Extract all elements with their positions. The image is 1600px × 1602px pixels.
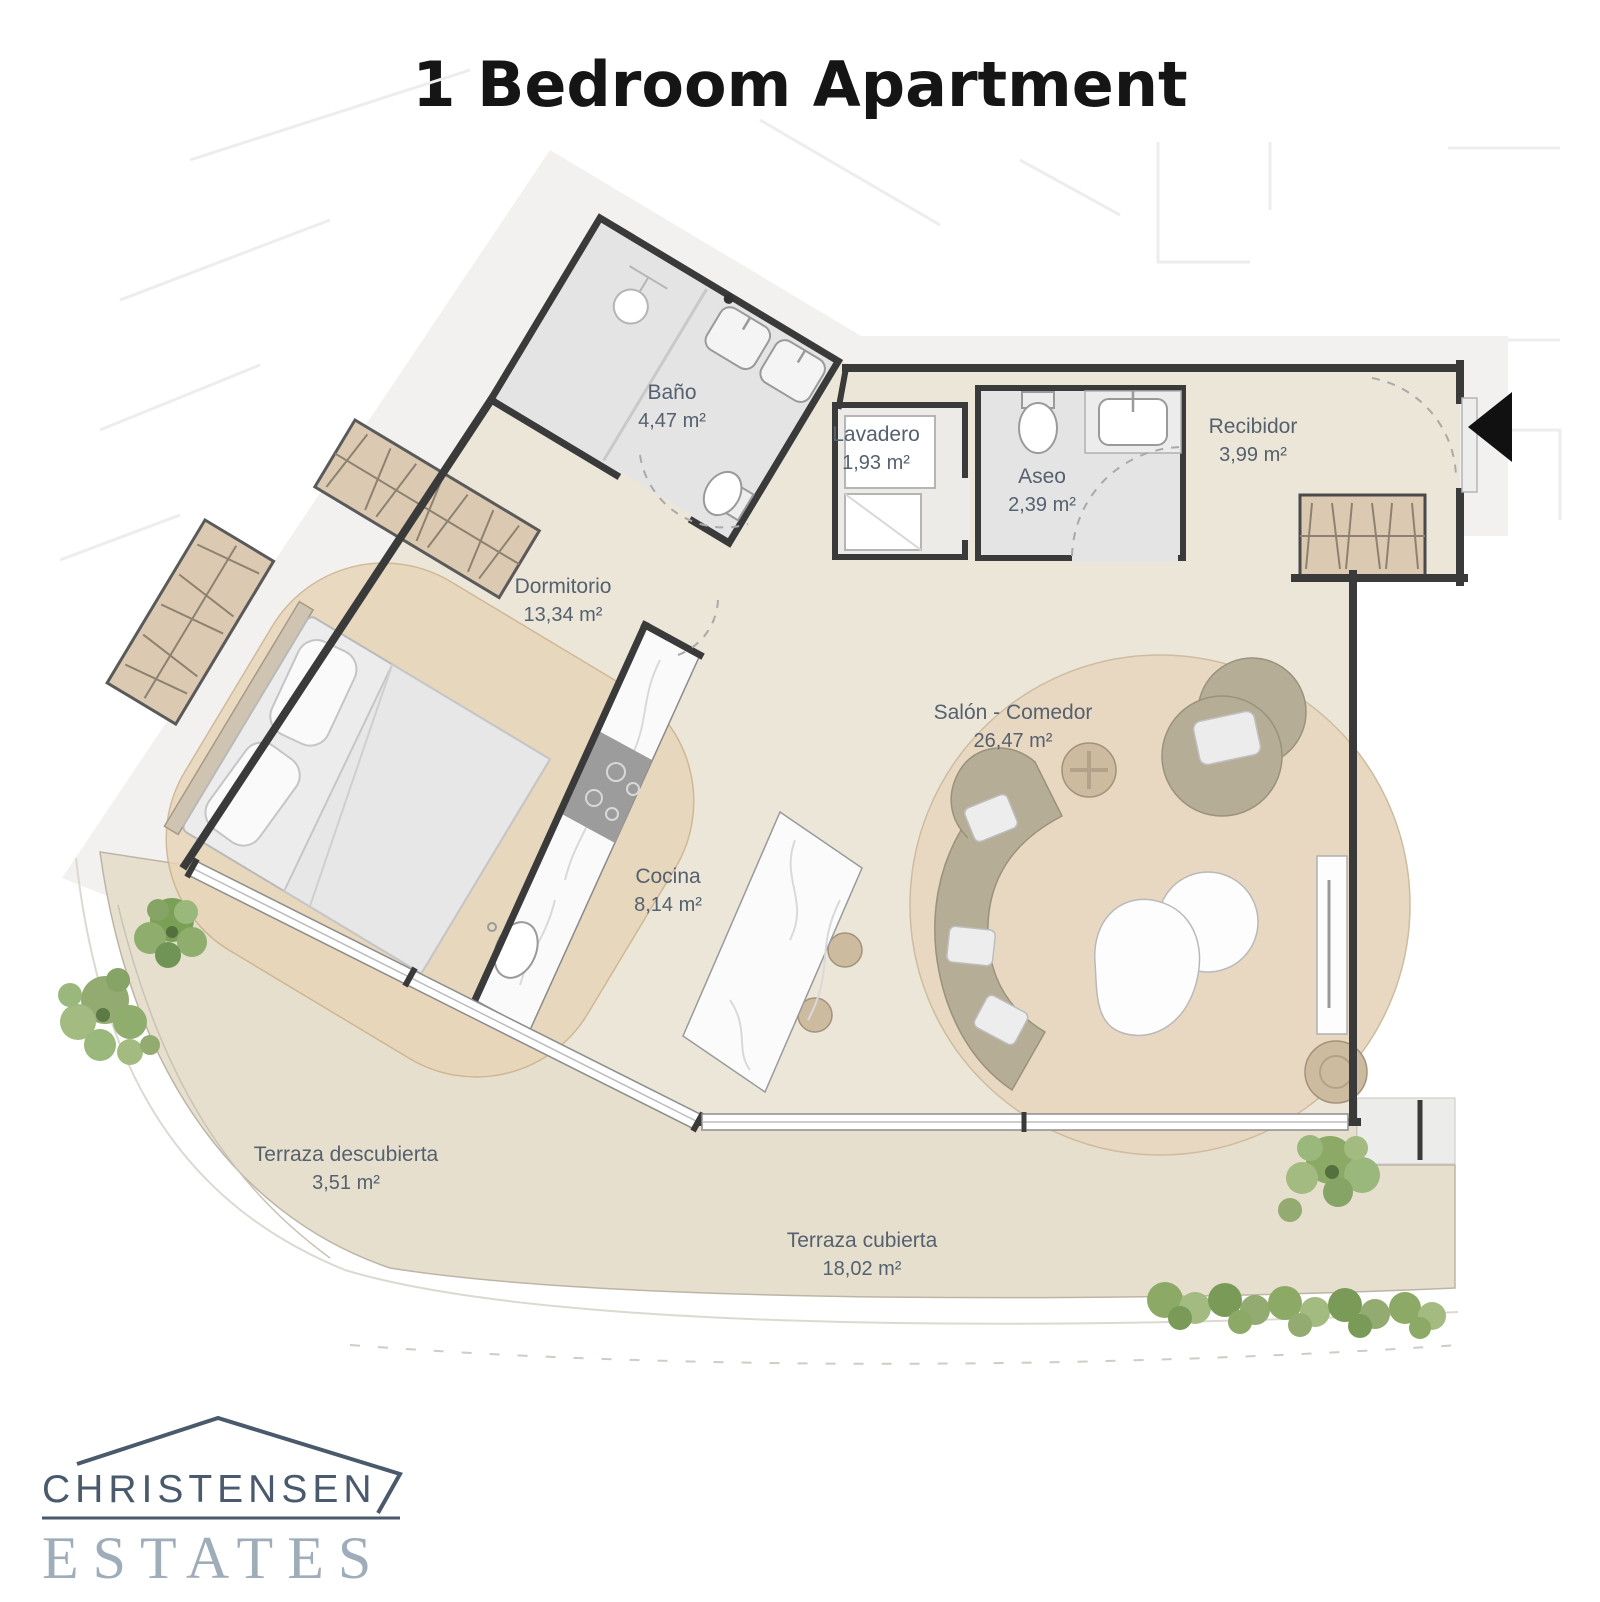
room-name: Salón - Comedor [934, 698, 1093, 727]
room-label-salon: Salón - Comedor 26,47 m² [934, 698, 1093, 755]
brand-logo: CHRISTENSEN ESTATES [28, 1392, 448, 1602]
room-area: 4,47 m² [638, 407, 706, 435]
room-label-cocina: Cocina 8,14 m² [634, 862, 702, 919]
door-leaf [1462, 398, 1477, 492]
room-label-lavadero: Lavadero 1,93 m² [832, 420, 920, 477]
room-name: Dormitorio [515, 572, 612, 601]
room-label-bano: Baño 4,47 m² [638, 378, 706, 435]
stool-icon [828, 933, 862, 967]
floor-plan [0, 0, 1600, 1600]
service-corner [1357, 1098, 1455, 1164]
room-label-terraza-descubierta: Terraza descubierta 3,51 m² [254, 1140, 438, 1197]
room-area: 3,99 m² [1209, 441, 1298, 469]
room-area: 1,93 m² [832, 449, 920, 477]
room-area: 3,51 m² [254, 1169, 438, 1197]
room-name: Baño [638, 378, 706, 407]
room-label-aseo: Aseo 2,39 m² [1008, 462, 1076, 519]
toilet-icon [1019, 392, 1057, 453]
room-area: 13,34 m² [515, 601, 612, 629]
room-area: 8,14 m² [634, 891, 702, 919]
logo-text-secondary: ESTATES [42, 1525, 385, 1591]
room-area: 18,02 m² [787, 1255, 938, 1283]
room-label-recibidor: Recibidor 3,99 m² [1209, 412, 1298, 469]
room-name: Terraza cubierta [787, 1226, 938, 1255]
room-label-dormitorio: Dormitorio 13,34 m² [515, 572, 612, 629]
room-name: Recibidor [1209, 412, 1298, 441]
room-area: 26,47 m² [934, 727, 1093, 755]
room-name: Cocina [634, 862, 702, 891]
room-label-terraza-cubierta: Terraza cubierta 18,02 m² [787, 1226, 938, 1283]
cushion [946, 926, 996, 967]
room-area: 2,39 m² [1008, 491, 1076, 519]
room-name: Aseo [1008, 462, 1076, 491]
logo-text-primary: CHRISTENSEN [42, 1468, 377, 1511]
sideboard [1317, 856, 1347, 1034]
entry-closet [1300, 495, 1425, 577]
room-name: Terraza descubierta [254, 1140, 438, 1169]
pouf [1305, 1041, 1367, 1103]
room-name: Lavadero [832, 420, 920, 449]
